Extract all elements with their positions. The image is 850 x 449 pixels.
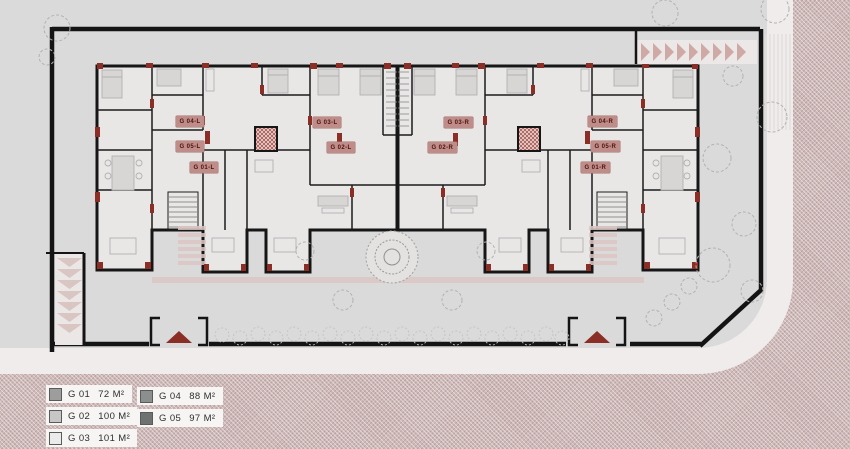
unit-label-g01-l: G 01-L [190, 162, 218, 173]
legend-swatch-g01 [49, 388, 62, 401]
legend-area: 88 M² [189, 391, 215, 402]
legend-item-g02: G 02 100 M² [46, 407, 137, 425]
legend-area: 101 M² [98, 433, 130, 444]
legend-swatch-g05 [140, 412, 153, 425]
legend-area: 72 M² [98, 389, 124, 400]
unit-label-g02-r: G 02-R [428, 142, 457, 153]
legend-item-g03: G 03 101 M² [46, 429, 137, 447]
legend-code: G 04 [159, 391, 181, 402]
legend-item-g01: G 01 72 M² [46, 385, 132, 403]
legend-swatch-g04 [140, 390, 153, 403]
legend-code: G 01 [68, 389, 90, 400]
legend-code: G 05 [159, 413, 181, 424]
unit-label-g04-r: G 04-R [588, 116, 617, 127]
unit-label-g04-l: G 04-L [176, 116, 204, 127]
legend-code: G 02 [68, 411, 90, 422]
unit-label-g05-r: G 05-R [591, 141, 620, 152]
legend-swatch-g03 [49, 432, 62, 445]
unit-label-g03-r: G 03-R [444, 117, 473, 128]
unit-label-g01-r: G 01-R [581, 162, 610, 173]
legend-item-g05: G 05 97 M² [137, 409, 223, 427]
legend-swatch-g02 [49, 410, 62, 423]
unit-label-g02-l: G 02-L [327, 142, 355, 153]
site-slab [0, 0, 793, 374]
legend-code: G 03 [68, 433, 90, 444]
legend-item-g04: G 04 88 M² [137, 387, 223, 405]
legend-area: 97 M² [189, 413, 215, 424]
unit-label-g05-l: G 05-L [176, 141, 204, 152]
unit-label-g03-l: G 03-L [313, 117, 341, 128]
legend-area: 100 M² [98, 411, 130, 422]
floor-plan-canvas: G 04-L G 05-L G 01-L G 03-L G 02-L G 03-… [0, 0, 850, 449]
